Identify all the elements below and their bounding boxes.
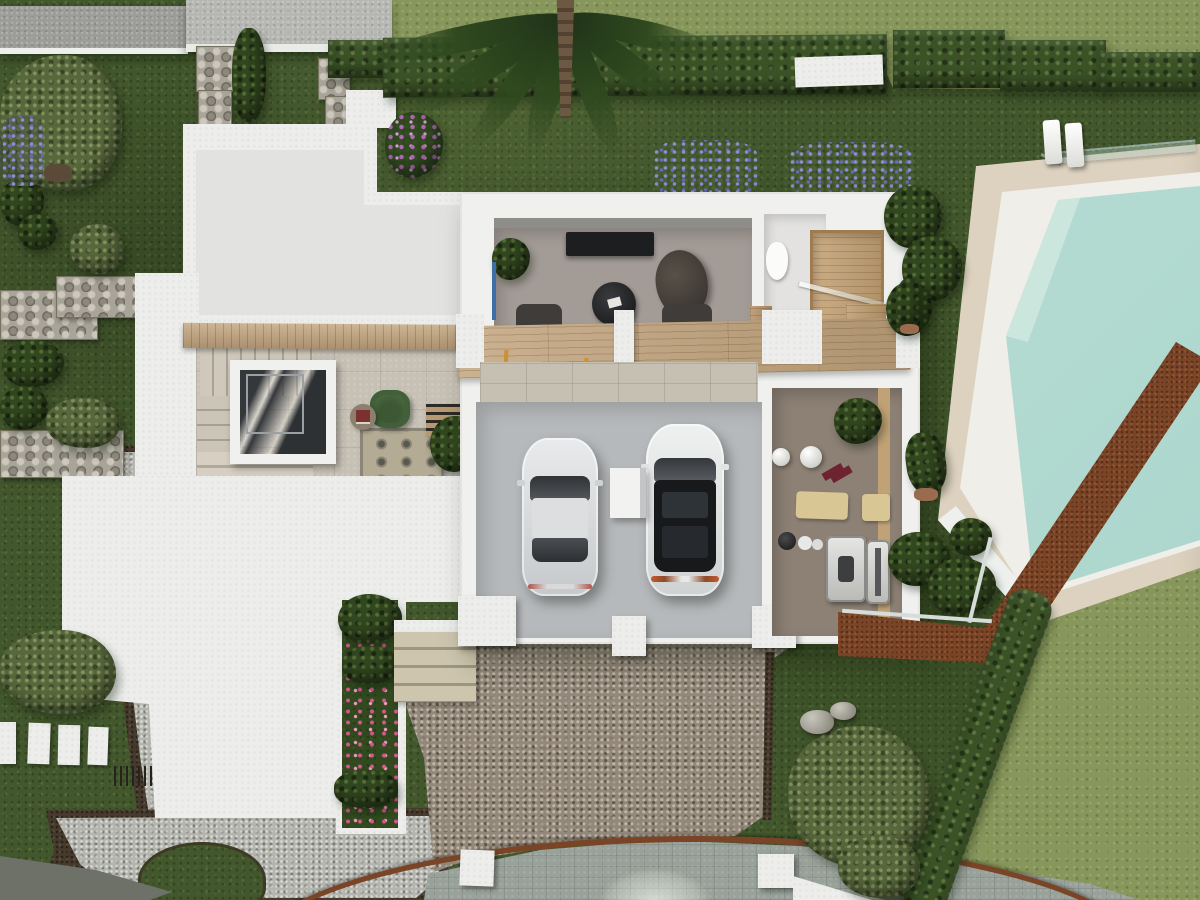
sun-lounger (1064, 122, 1084, 167)
garage-pillar (458, 596, 516, 646)
gym-stool (812, 539, 823, 550)
flower-border-left (0, 116, 44, 186)
sun-lounger (1042, 119, 1062, 164)
garage-column (610, 468, 646, 518)
gym-machine (866, 540, 890, 604)
rock (830, 702, 856, 720)
car-taillights (651, 576, 719, 582)
gabion-pillar (198, 90, 232, 126)
stepping-stone (58, 725, 81, 765)
corridor-wall-stub (762, 310, 822, 364)
car-sedan (522, 438, 598, 596)
machine-seat (838, 556, 854, 582)
yoga-mat (796, 491, 849, 520)
car-mirror (517, 480, 525, 486)
boundary-wall-northwest (0, 6, 188, 54)
hedge-row-northeast (1000, 40, 1106, 92)
bush-yellow-green (70, 224, 124, 274)
car-taillights (528, 584, 592, 589)
olive-tree-lobe (838, 836, 920, 898)
car-windshield (654, 458, 716, 482)
villa-aerial-render (0, 0, 1200, 900)
potted-cypress-small (896, 278, 922, 328)
armchair-green (370, 390, 410, 428)
stepping-stone (0, 722, 16, 764)
car-glass-roof (654, 480, 716, 572)
drain-grate (114, 766, 152, 786)
toilet (766, 242, 788, 280)
wood-walkway-courtyard (183, 323, 499, 350)
kettlebell (778, 532, 796, 550)
glass-roof-panel (662, 526, 708, 558)
exercise-ball (800, 446, 822, 468)
planter-cypress (342, 646, 398, 684)
concrete-bench (795, 54, 884, 87)
entry-tile-strip (480, 362, 758, 404)
books-on-table (356, 410, 370, 422)
exercise-ball (772, 448, 790, 466)
stepping-stone (87, 727, 108, 766)
corridor-wall-stub (456, 314, 484, 368)
tv-screen (566, 232, 654, 256)
corridor-wall-stub (614, 310, 634, 368)
lavender-bed (652, 140, 758, 198)
gym-stool (798, 536, 812, 550)
glass-roof-panel (662, 492, 708, 518)
gate-post (758, 854, 794, 888)
car-rear-window (532, 538, 588, 562)
yoga-mat (862, 494, 890, 521)
terracotta-pot (900, 324, 919, 334)
stepping-stone (27, 723, 50, 765)
cypress-hedge-column (232, 28, 266, 122)
gate-post (459, 849, 494, 886)
hedge-row-northeast (893, 30, 1005, 88)
machine-rail (875, 548, 881, 596)
olive-trunk (44, 164, 72, 182)
garage-pillar (612, 616, 646, 656)
terracotta-pot (914, 488, 938, 501)
gym-machine (826, 536, 866, 602)
led-strip (492, 262, 496, 320)
olive-tree-southwest (0, 630, 116, 714)
car-mirror (595, 480, 603, 486)
planter-cypress (334, 770, 398, 808)
gabion-terrace-wall (56, 276, 138, 318)
stair-side-wall (135, 273, 199, 479)
car-roof (532, 498, 588, 538)
elevator-frame (246, 374, 304, 434)
grey-green-shrub (46, 398, 120, 448)
hedge-row-northeast (1100, 52, 1200, 92)
rock (800, 710, 834, 734)
car-panoramic (646, 424, 724, 596)
car-mirror (721, 464, 729, 470)
